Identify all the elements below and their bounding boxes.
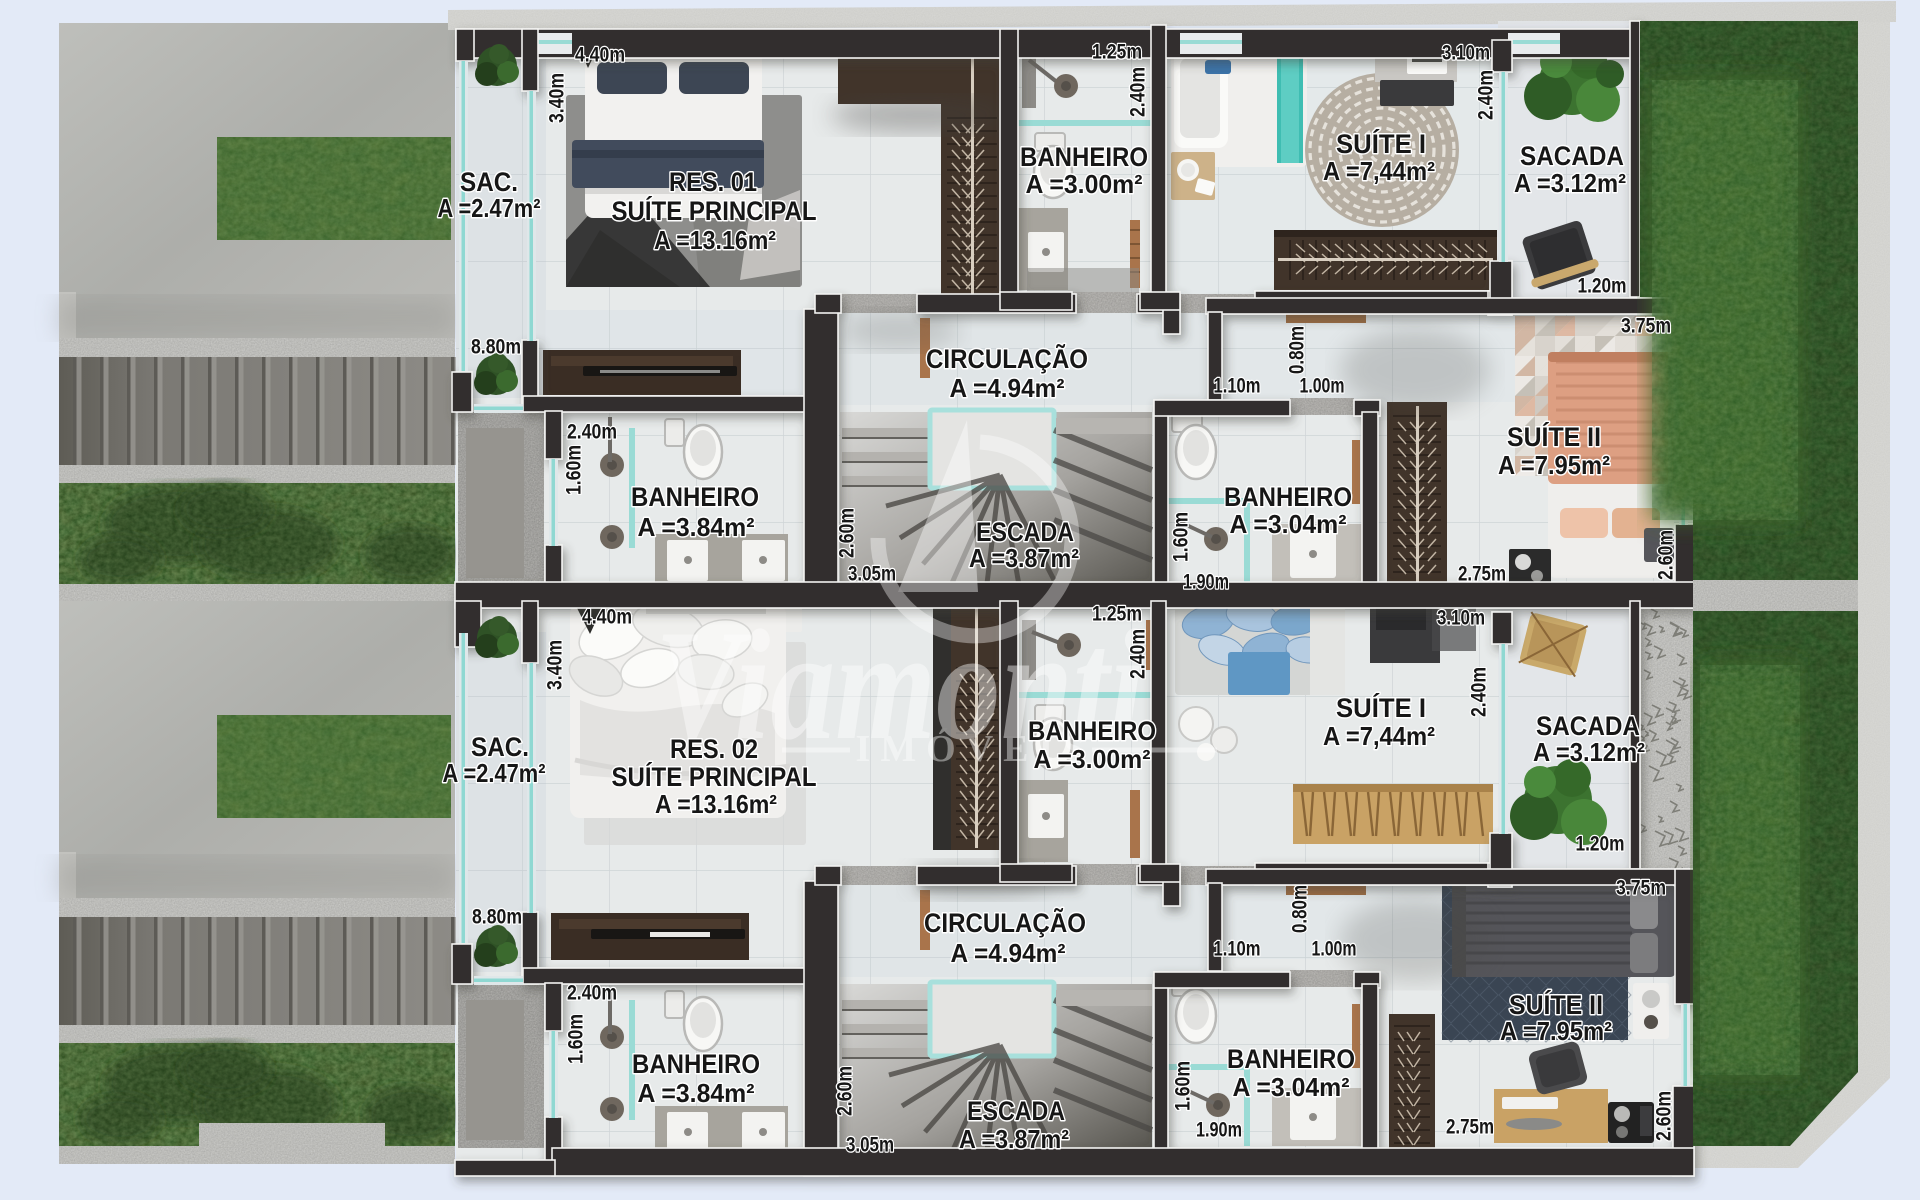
svg-text:1.00m: 1.00m [1312, 938, 1357, 961]
svg-text:BANHEIRO: BANHEIRO [631, 482, 759, 512]
svg-text:SUÍTE II: SUÍTE II [1507, 421, 1601, 452]
svg-text:BANHEIRO: BANHEIRO [1020, 142, 1148, 172]
svg-text:A =13.16m²: A =13.16m² [655, 789, 777, 819]
svg-text:2.60m: 2.60m [1653, 1091, 1676, 1141]
svg-text:3.05m: 3.05m [848, 563, 896, 586]
svg-text:BANHEIRO: BANHEIRO [1028, 716, 1156, 746]
svg-text:3.75m: 3.75m [1621, 315, 1671, 338]
svg-text:1.25m: 1.25m [1092, 603, 1142, 626]
svg-text:RES. 02: RES. 02 [670, 734, 758, 764]
svg-text:A =3.84m²: A =3.84m² [638, 1078, 755, 1108]
svg-text:1.25m: 1.25m [1092, 41, 1142, 64]
svg-text:SACADA: SACADA [1520, 141, 1624, 171]
svg-text:A =7.95m²: A =7.95m² [1498, 450, 1610, 480]
svg-text:A =3.87m²: A =3.87m² [969, 543, 1079, 573]
svg-text:2.60m: 2.60m [834, 1066, 857, 1116]
svg-text:2.40m: 2.40m [1475, 70, 1498, 120]
svg-text:A =2.47m²: A =2.47m² [443, 758, 546, 788]
svg-text:A =3.87m²: A =3.87m² [959, 1124, 1069, 1154]
svg-text:A =7,44m²: A =7,44m² [1323, 156, 1435, 186]
svg-text:A =3.12m²: A =3.12m² [1514, 168, 1626, 198]
svg-text:A =13.16m²: A =13.16m² [654, 225, 776, 255]
svg-text:1.10m: 1.10m [1214, 375, 1261, 398]
svg-text:2.40m: 2.40m [567, 982, 617, 1005]
svg-text:A =4.94m²: A =4.94m² [950, 373, 1065, 403]
svg-text:2.40m: 2.40m [1127, 67, 1150, 117]
svg-text:CIRCULAÇÃO: CIRCULAÇÃO [926, 343, 1088, 374]
svg-text:2.40m: 2.40m [1468, 667, 1491, 717]
svg-text:2.40m: 2.40m [1127, 629, 1150, 679]
svg-text:1.90m: 1.90m [1196, 1119, 1242, 1142]
svg-text:A =3.12m²: A =3.12m² [1533, 737, 1645, 767]
svg-text:1.60m: 1.60m [565, 1014, 588, 1064]
svg-text:1.10m: 1.10m [1214, 938, 1261, 961]
svg-text:3.40m: 3.40m [546, 73, 569, 123]
svg-text:1.60m: 1.60m [1172, 1061, 1195, 1111]
svg-text:SUÍTE I: SUÍTE I [1336, 128, 1426, 159]
svg-text:RES. 01: RES. 01 [669, 167, 757, 197]
svg-text:0.80m: 0.80m [1286, 326, 1309, 374]
svg-text:A =3.04m²: A =3.04m² [1233, 1072, 1350, 1102]
svg-text:2.75m: 2.75m [1446, 1116, 1494, 1139]
svg-text:A =4.94m²: A =4.94m² [951, 938, 1066, 968]
svg-text:A =7.95m²: A =7.95m² [1500, 1016, 1612, 1046]
svg-text:8.80m: 8.80m [472, 906, 522, 929]
svg-text:1.90m: 1.90m [1183, 571, 1229, 594]
svg-text:4.40m: 4.40m [582, 606, 632, 629]
svg-text:8.80m: 8.80m [471, 336, 521, 359]
svg-text:2.60m: 2.60m [836, 508, 859, 558]
svg-text:4.40m: 4.40m [575, 44, 625, 67]
svg-text:0.80m: 0.80m [1289, 885, 1312, 933]
svg-text:A =7,44m²: A =7,44m² [1323, 721, 1435, 751]
svg-text:A =3.84m²: A =3.84m² [638, 512, 755, 542]
svg-text:1.60m: 1.60m [1170, 512, 1193, 562]
svg-text:2.75m: 2.75m [1458, 563, 1506, 586]
svg-text:SUÍTE PRINCIPAL: SUÍTE PRINCIPAL [612, 195, 817, 226]
svg-text:1.20m: 1.20m [1578, 275, 1627, 298]
svg-text:A =3.00m²: A =3.00m² [1034, 744, 1151, 774]
svg-text:BANHEIRO: BANHEIRO [1227, 1044, 1355, 1074]
svg-text:A =3.00m²: A =3.00m² [1026, 169, 1143, 199]
svg-text:1.20m: 1.20m [1576, 833, 1625, 856]
svg-text:SUÍTE PRINCIPAL: SUÍTE PRINCIPAL [612, 761, 817, 792]
svg-text:A =2.47m²: A =2.47m² [438, 193, 541, 223]
svg-text:3.10m: 3.10m [1437, 607, 1485, 630]
svg-text:3.05m: 3.05m [846, 1134, 894, 1157]
svg-text:CIRCULAÇÃO: CIRCULAÇÃO [924, 907, 1086, 938]
svg-text:3.10m: 3.10m [1442, 42, 1490, 65]
svg-text:A =3.04m²: A =3.04m² [1230, 509, 1347, 539]
svg-text:2.60m: 2.60m [1655, 530, 1678, 580]
svg-text:SUÍTE I: SUÍTE I [1336, 692, 1426, 723]
svg-text:BANHEIRO: BANHEIRO [1224, 482, 1352, 512]
svg-text:3.40m: 3.40m [544, 640, 567, 690]
svg-text:1.60m: 1.60m [563, 445, 586, 495]
svg-text:1.00m: 1.00m [1300, 375, 1345, 398]
svg-text:2.40m: 2.40m [567, 421, 617, 444]
svg-text:3.75m: 3.75m [1616, 877, 1666, 900]
svg-text:BANHEIRO: BANHEIRO [632, 1049, 760, 1079]
svg-text:ESCADA: ESCADA [967, 1096, 1065, 1126]
